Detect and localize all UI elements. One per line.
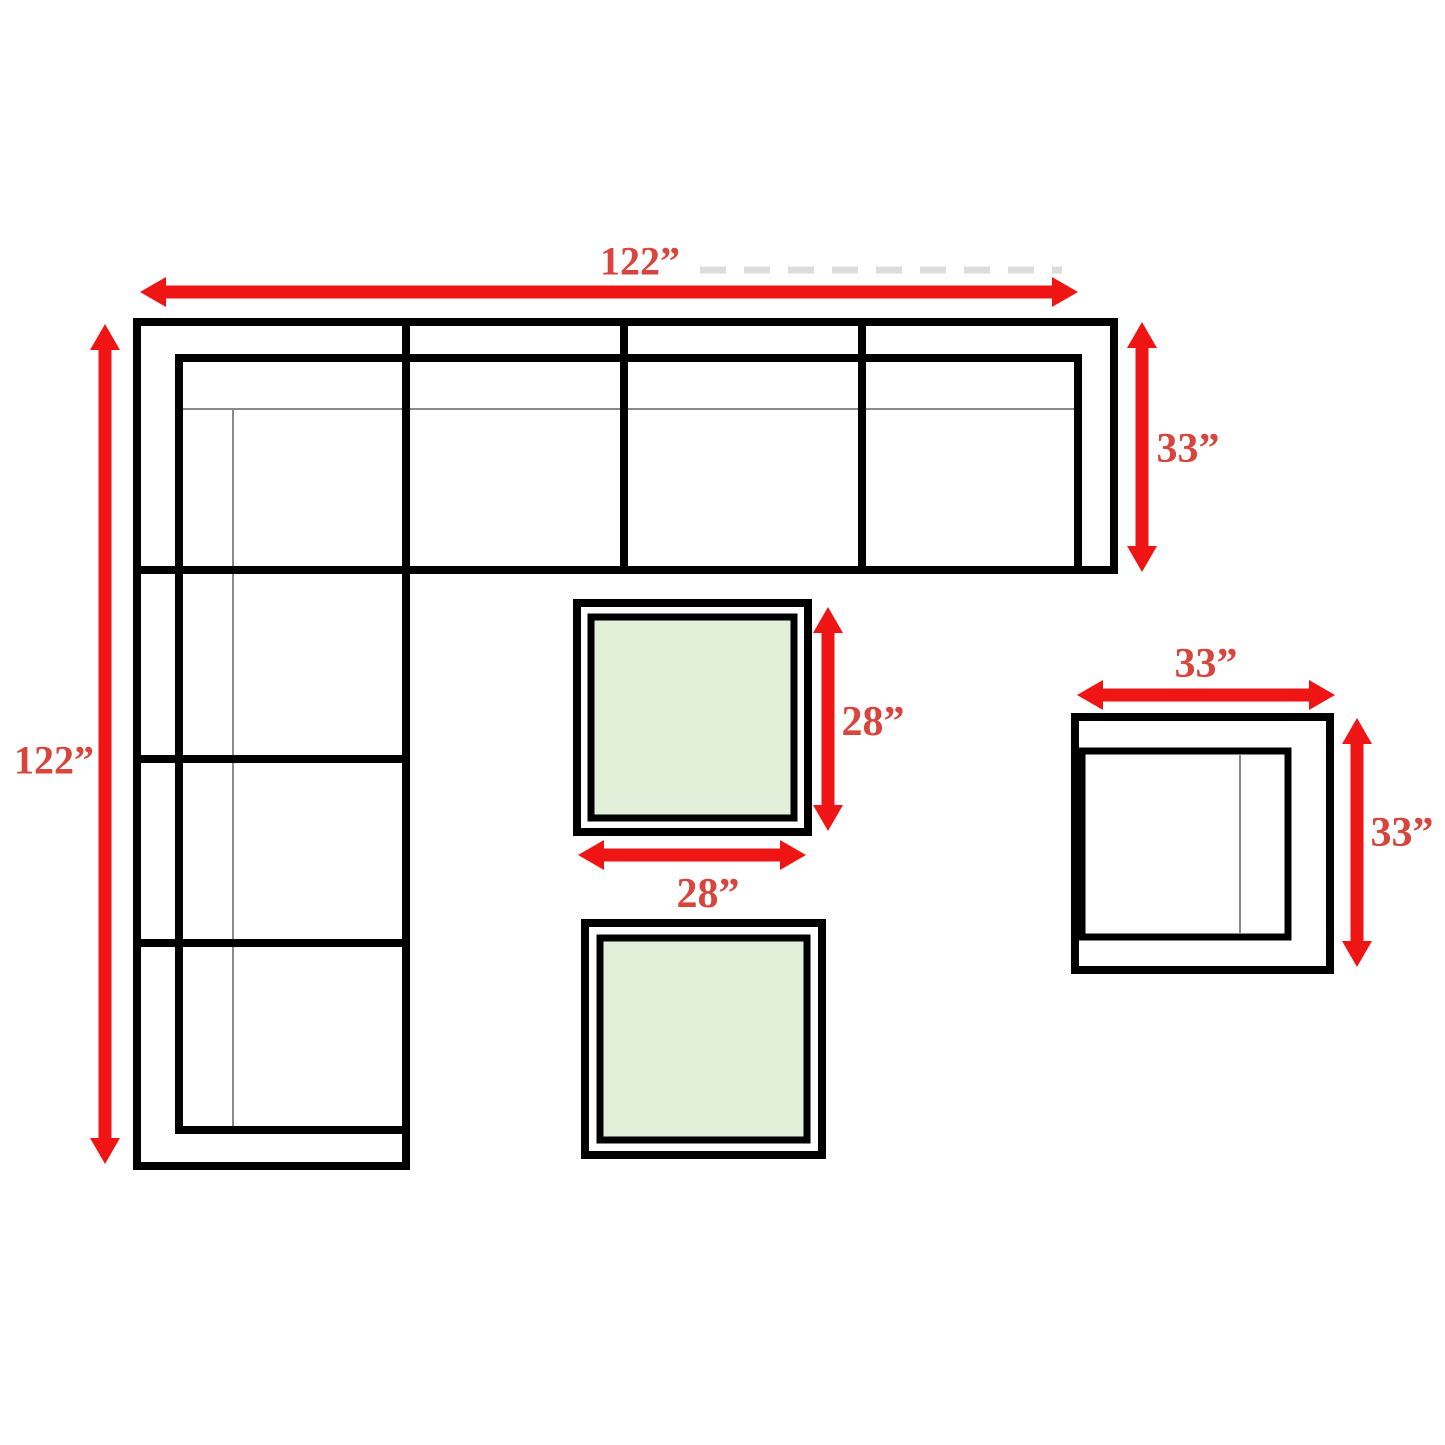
label-table-width: 28”: [677, 871, 740, 917]
furniture-dimension-diagram-page: 122”122”33”33”33”28”28”: [0, 0, 1445, 1445]
label-sofa-width: 122”: [600, 239, 680, 284]
label-sofa-height: 122”: [14, 738, 94, 783]
ottoman-table-1-top: [591, 617, 794, 818]
label-sofa-depth: 33”: [1157, 426, 1220, 472]
armchair-outline-seat: [1082, 751, 1288, 937]
dimension-diagram-canvas: 122”122”33”33”33”28”28”: [0, 0, 1445, 1445]
label-chair-width: 33”: [1175, 641, 1238, 687]
ottoman-table-2-top: [600, 938, 807, 1140]
label-table-height: 28”: [842, 699, 905, 745]
label-chair-height: 33”: [1371, 810, 1434, 856]
